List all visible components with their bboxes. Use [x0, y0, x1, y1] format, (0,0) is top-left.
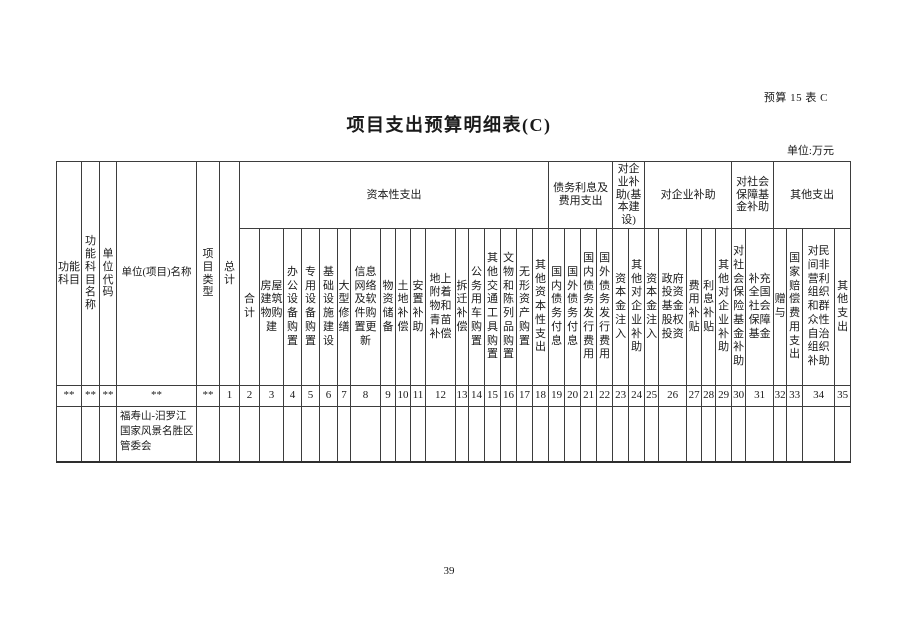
- data-cell: [687, 407, 702, 463]
- column-number-cell: 8: [351, 386, 381, 407]
- data-cell: [284, 407, 302, 463]
- column-header-cell: 信息网络及软件购置更新: [351, 229, 381, 386]
- left-header-cell: 功能科目: [57, 162, 82, 386]
- column-number-cell: **: [57, 386, 82, 407]
- unit-name-cell: 福寿山-汨罗江国家风景名胜区管委会: [117, 407, 197, 463]
- data-cell: [549, 407, 565, 463]
- column-number-cell: 2: [240, 386, 260, 407]
- column-number-cell: 29: [716, 386, 732, 407]
- data-cell: [787, 407, 803, 463]
- column-header-cell: 政府投资基金股权投资: [659, 229, 687, 386]
- data-cell: [82, 407, 100, 463]
- column-number-cell: 15: [485, 386, 501, 407]
- group-header-row: 功能科目功能科目名称单位代码单位(项目)名称项目类型总计资本性支出债务利息及费用…: [57, 162, 851, 229]
- column-header-cell: 合计: [240, 229, 260, 386]
- left-header-cell: 项目类型: [197, 162, 220, 386]
- column-header-cell: 文物和陈列品购置: [501, 229, 517, 386]
- data-cell: [197, 407, 220, 463]
- column-header-cell: 物资储备: [381, 229, 396, 386]
- column-header-cell: 对社会保险基金补助: [732, 229, 746, 386]
- data-cell: [732, 407, 746, 463]
- column-header-cell: 对民间非营利组织和群众性自治组织补助: [803, 229, 835, 386]
- page-title: 项目支出预算明细表(C): [0, 111, 898, 137]
- data-cell: [581, 407, 597, 463]
- project-expenditure-table: 功能科目功能科目名称单位代码单位(项目)名称项目类型总计资本性支出债务利息及费用…: [56, 161, 851, 463]
- page-number: 39: [0, 565, 898, 577]
- column-number-cell: 25: [645, 386, 659, 407]
- data-cell: [411, 407, 426, 463]
- data-cell: [645, 407, 659, 463]
- column-number-cell: 9: [381, 386, 396, 407]
- data-cell: [716, 407, 732, 463]
- column-number-cell: 20: [565, 386, 581, 407]
- column-header-cell: 土地补偿: [396, 229, 411, 386]
- data-cell: [629, 407, 645, 463]
- column-header-cell: 国家赔偿费用支出: [787, 229, 803, 386]
- column-header-cell: 国内债务发行费用: [581, 229, 597, 386]
- column-header-cell: 其他交通工具购置: [485, 229, 501, 386]
- column-number-cell: 4: [284, 386, 302, 407]
- left-header-cell: 单位代码: [100, 162, 117, 386]
- data-cell: [597, 407, 613, 463]
- column-number-cell: 30: [732, 386, 746, 407]
- column-header-cell: 国外债务付息: [565, 229, 581, 386]
- column-number-cell: **: [82, 386, 100, 407]
- data-cell: [57, 407, 82, 463]
- data-cell: [220, 407, 240, 463]
- column-number-cell: 31: [746, 386, 774, 407]
- column-number-cell: 13: [456, 386, 469, 407]
- data-cell: [100, 407, 117, 463]
- column-number-cell: 22: [597, 386, 613, 407]
- column-number-cell: 11: [411, 386, 426, 407]
- data-cell: [533, 407, 549, 463]
- column-header-cell: 补充全国社会保障基金: [746, 229, 774, 386]
- column-number-cell: 26: [659, 386, 687, 407]
- data-cell: [240, 407, 260, 463]
- column-number-cell: 16: [501, 386, 517, 407]
- data-cell: [381, 407, 396, 463]
- data-cell: [456, 407, 469, 463]
- column-number-cell: **: [197, 386, 220, 407]
- data-cell: [517, 407, 533, 463]
- column-header-cell: 利息补贴: [702, 229, 716, 386]
- column-header-cell: 地上附着物和青苗补偿: [426, 229, 456, 386]
- column-number-cell: 19: [549, 386, 565, 407]
- group-header-cell: 资本性支出: [240, 162, 549, 229]
- column-header-cell: 拆迁补偿: [456, 229, 469, 386]
- column-header-cell: 资本金注入: [613, 229, 629, 386]
- column-number-cell: 3: [260, 386, 284, 407]
- column-header-cell: 其他资本性支出: [533, 229, 549, 386]
- column-number-cell: 7: [338, 386, 351, 407]
- left-header-cell: 功能科目名称: [82, 162, 100, 386]
- column-number-cell: 1: [220, 386, 240, 407]
- column-header-cell: 国内债务付息: [549, 229, 565, 386]
- column-header-cell: 其他对企业补助: [716, 229, 732, 386]
- column-header-cell: 无形资产购置: [517, 229, 533, 386]
- column-number-cell: 33: [787, 386, 803, 407]
- column-number-cell: 18: [533, 386, 549, 407]
- column-number-cell: 17: [517, 386, 533, 407]
- column-header-cell: 费用补贴: [687, 229, 702, 386]
- column-number-cell: 24: [629, 386, 645, 407]
- data-cell: [396, 407, 411, 463]
- data-cell: [746, 407, 774, 463]
- data-cell: [426, 407, 456, 463]
- data-cell: [702, 407, 716, 463]
- group-header-cell: 债务利息及费用支出: [549, 162, 613, 229]
- column-number-cell: 14: [469, 386, 485, 407]
- column-number-cell: 21: [581, 386, 597, 407]
- column-number-cell: 10: [396, 386, 411, 407]
- data-cell: [613, 407, 629, 463]
- column-number-cell: 32: [774, 386, 787, 407]
- data-cell: [351, 407, 381, 463]
- doc-ref-label: 预算 15 表 C: [764, 89, 828, 105]
- group-header-cell: 对企业补助(基本建设): [613, 162, 645, 229]
- data-cell: [469, 407, 485, 463]
- column-header-cell: 办公设备购置: [284, 229, 302, 386]
- column-number-row: **********123456789101112131415161718192…: [57, 386, 851, 407]
- data-cell: [803, 407, 835, 463]
- unit-note: 单位:万元: [787, 142, 834, 158]
- column-header-cell: 专用设备购置: [302, 229, 320, 386]
- column-header-cell: 国外债务发行费用: [597, 229, 613, 386]
- group-header-cell: 对社会保障基金补助: [732, 162, 774, 229]
- group-header-cell: 其他支出: [774, 162, 851, 229]
- column-number-cell: **: [100, 386, 117, 407]
- data-cell: [320, 407, 338, 463]
- column-header-cell: 安置补助: [411, 229, 426, 386]
- column-header-cell: 基础设施建设: [320, 229, 338, 386]
- column-header-cell: 大型修缮: [338, 229, 351, 386]
- data-cell: [774, 407, 787, 463]
- table-row: 福寿山-汨罗江国家风景名胜区管委会: [57, 407, 851, 463]
- column-number-cell: 27: [687, 386, 702, 407]
- data-cell: [835, 407, 851, 463]
- left-header-cell: 总计: [220, 162, 240, 386]
- left-header-cell: 单位(项目)名称: [117, 162, 197, 386]
- column-number-cell: 28: [702, 386, 716, 407]
- data-cell: [501, 407, 517, 463]
- column-header-cell: 其他对企业补助: [629, 229, 645, 386]
- column-number-cell: 23: [613, 386, 629, 407]
- data-cell: [565, 407, 581, 463]
- column-header-cell: 赠与: [774, 229, 787, 386]
- document-page: 预算 15 表 C 项目支出预算明细表(C) 单位:万元 功能科目功能科目名称单…: [0, 0, 898, 635]
- column-number-cell: 34: [803, 386, 835, 407]
- column-number-cell: 35: [835, 386, 851, 407]
- column-header-cell: 资本金注入: [645, 229, 659, 386]
- group-header-cell: 对企业补助: [645, 162, 732, 229]
- column-number-cell: 12: [426, 386, 456, 407]
- data-cell: [260, 407, 284, 463]
- column-number-cell: **: [117, 386, 197, 407]
- data-cell: [485, 407, 501, 463]
- column-header-cell: 公务用车购置: [469, 229, 485, 386]
- column-header-cell: 其他支出: [835, 229, 851, 386]
- data-cell: [659, 407, 687, 463]
- column-number-cell: 5: [302, 386, 320, 407]
- column-number-cell: 6: [320, 386, 338, 407]
- data-cell: [338, 407, 351, 463]
- column-header-cell: 房屋建筑物购建: [260, 229, 284, 386]
- data-cell: [302, 407, 320, 463]
